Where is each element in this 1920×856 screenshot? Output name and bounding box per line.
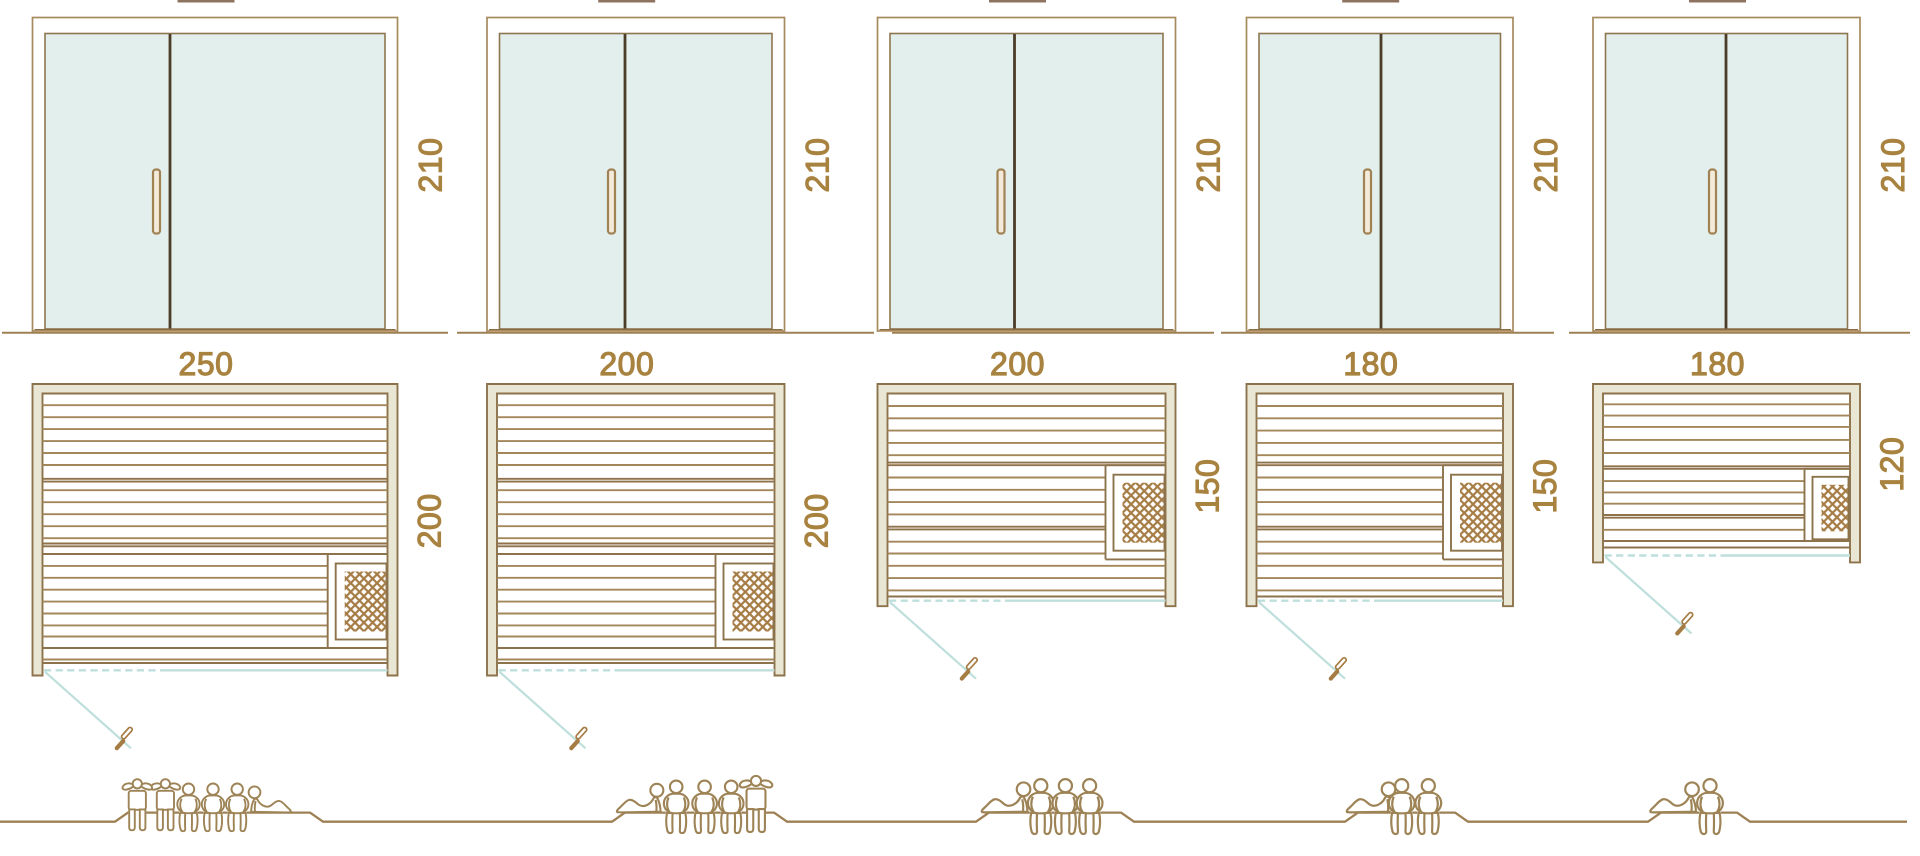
svg-text:150: 150 <box>1190 459 1226 514</box>
svg-text:210: 210 <box>1528 138 1564 193</box>
svg-text:150: 150 <box>1527 459 1563 514</box>
svg-text:120: 120 <box>1874 437 1910 492</box>
svg-text:210: 210 <box>1191 138 1227 193</box>
svg-text:180: 180 <box>1690 346 1745 382</box>
svg-text:210: 210 <box>800 138 836 193</box>
svg-text:200: 200 <box>990 346 1045 382</box>
svg-text:250: 250 <box>179 346 234 382</box>
svg-text:200: 200 <box>799 493 835 548</box>
svg-text:210: 210 <box>413 138 449 193</box>
svg-text:200: 200 <box>599 346 654 382</box>
svg-text:200: 200 <box>412 493 448 548</box>
svg-text:180: 180 <box>1343 346 1398 382</box>
svg-text:210: 210 <box>1875 138 1911 193</box>
